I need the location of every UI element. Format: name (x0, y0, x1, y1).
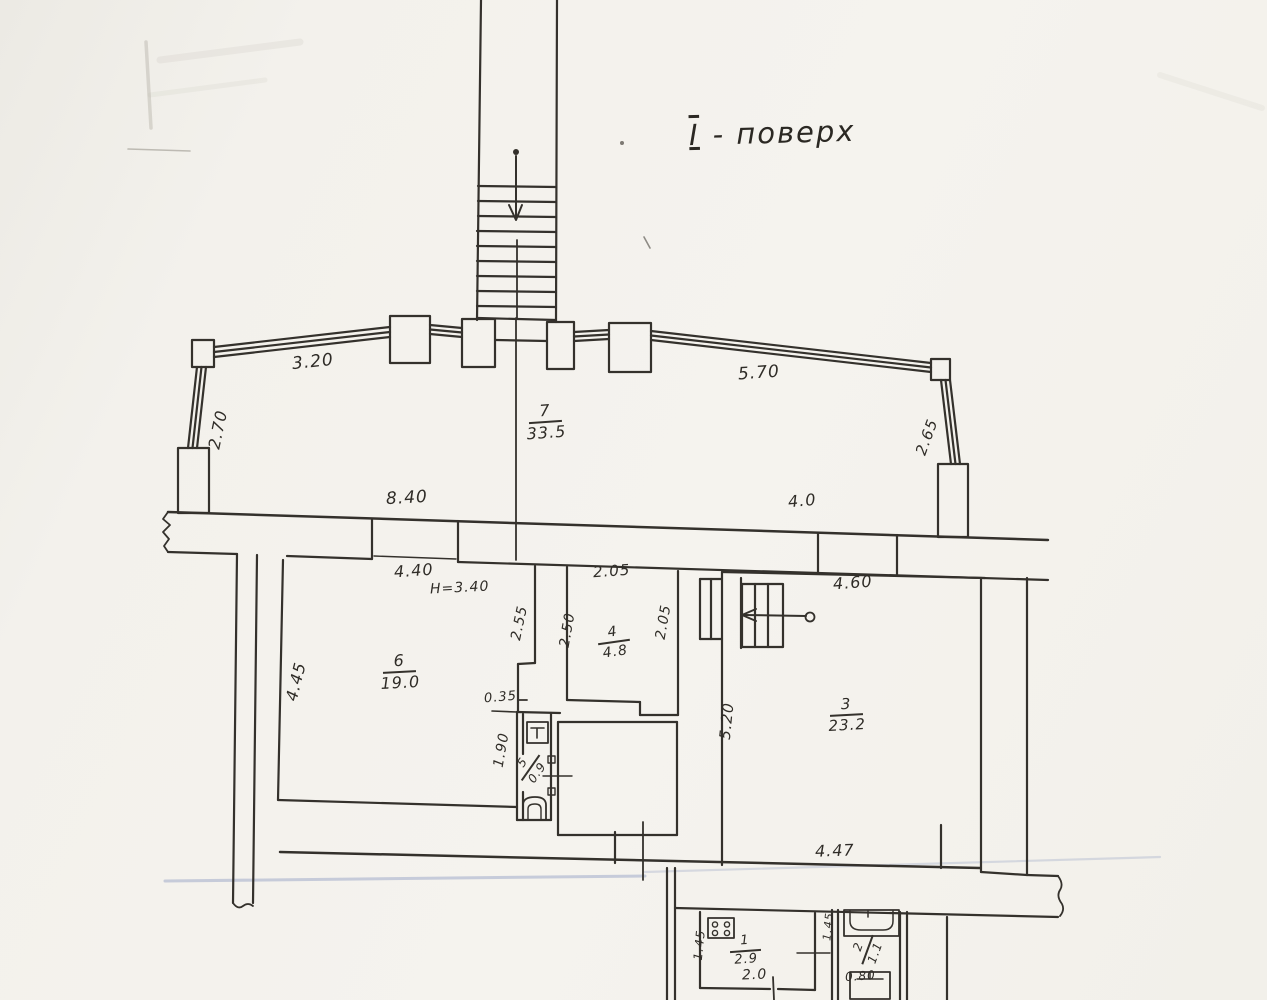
floor-plan-drawing (0, 0, 1267, 1000)
porch-corner-post-right (931, 359, 950, 380)
page-title: І- поверх (686, 114, 856, 152)
storage-room-walls (558, 722, 677, 835)
stair3-direction-arrow (742, 609, 815, 622)
dim-0-80: 0.80 (845, 968, 877, 984)
dim-5-70: 5.70 (737, 362, 780, 385)
room-3-area: 23.2 (828, 715, 866, 735)
staircase-top (477, 0, 557, 560)
room-4-area: 4.8 (602, 641, 629, 661)
room-6-area: 19.0 (380, 672, 421, 693)
dim-4-40: 4.40 (393, 560, 434, 582)
porch-pillar-3 (547, 322, 574, 369)
title-floor-text: - поверх (712, 114, 856, 152)
scan-artifacts (128, 42, 1262, 881)
room-7-label: 7 33.5 (525, 401, 567, 444)
room-3-number: 3 (829, 695, 863, 717)
room-7-area: 33.5 (526, 422, 567, 444)
dim-0-35: 0.35 (483, 689, 517, 707)
dim-4-60: 4.60 (832, 572, 873, 594)
dim-8-40: 8.40 (386, 487, 429, 509)
porch-pillar-right-bottom (938, 464, 968, 537)
title-floor-numeral: І (686, 118, 703, 152)
porch-corner-post-left (192, 340, 214, 367)
dim-4-47: 4.47 (815, 840, 855, 860)
room-1-number: 1 (729, 933, 761, 953)
room-1-label: 1 2.9 (729, 933, 763, 969)
washbasin-icon (527, 722, 548, 743)
porch-pillar-4 (609, 323, 651, 372)
room-3-label: 3 23.2 (827, 695, 866, 735)
room-7-number: 7 (528, 401, 563, 425)
scanned-floor-plan-page: І- поверх 3.20 5.70 2.70 2.65 8.40 4.0 4… (0, 0, 1267, 1000)
dim-2-0: 2.0 (742, 967, 768, 984)
porch-pillar-left-bottom (178, 448, 209, 513)
porch-room-7 (178, 316, 968, 537)
dim-2-05-top: 2.05 (592, 561, 631, 582)
room-6-label: 6 19.0 (379, 651, 421, 694)
porch-pillar-1 (390, 316, 430, 363)
toilet-icon (523, 797, 546, 819)
note-ceiling-height: H=3.40 (430, 578, 490, 597)
dim-4-0: 4.0 (787, 490, 817, 511)
room-6-number: 6 (382, 651, 416, 674)
room-1-area: 2.9 (734, 951, 759, 969)
room-4-label: 4 4.8 (596, 622, 633, 662)
stair-room-3 (700, 579, 815, 647)
porch-pillar-2 (462, 319, 495, 367)
stair-direction-arrow (509, 149, 522, 560)
